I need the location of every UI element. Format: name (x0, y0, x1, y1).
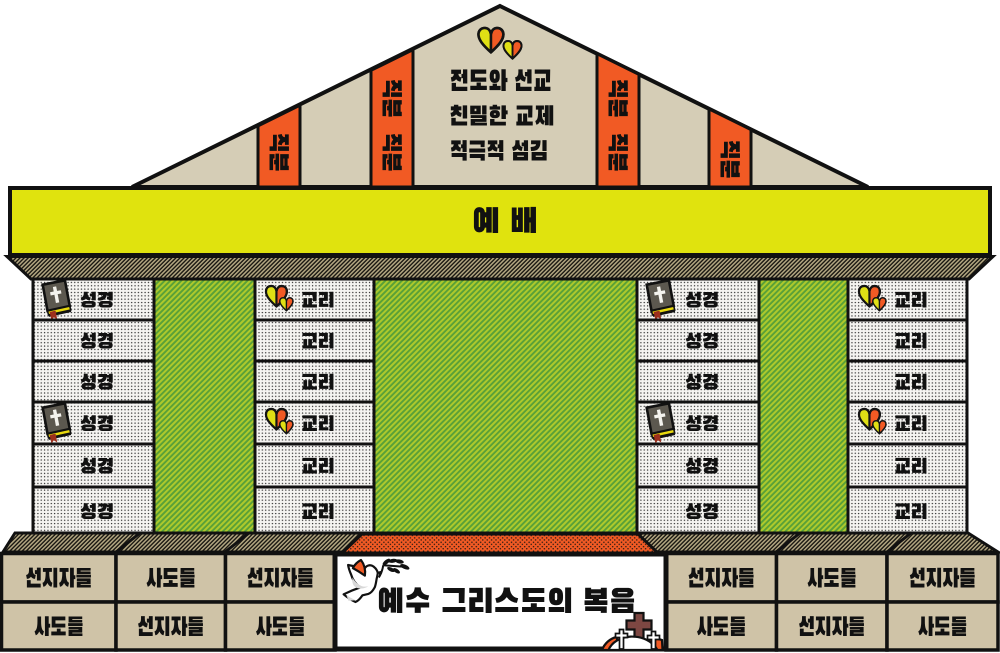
svg-text:선지자들: 선지자들 (909, 568, 976, 594)
svg-text:선지자들: 선지자들 (798, 616, 865, 642)
svg-text:성경: 성경 (685, 290, 719, 312)
svg-text:교리: 교리 (301, 503, 335, 524)
svg-text:성경: 성경 (685, 502, 719, 524)
svg-text:교리: 교리 (894, 291, 928, 312)
svg-text:성경: 성경 (685, 456, 719, 478)
svg-text:예수 그리스도의 복음: 예수 그리스도의 복음 (377, 587, 636, 621)
svg-text:교리: 교리 (894, 415, 928, 436)
svg-text:직분: 직분 (602, 79, 628, 118)
svg-text:선지자들: 선지자들 (688, 568, 755, 594)
svg-text:성경: 성경 (685, 372, 719, 394)
svg-text:교리: 교리 (301, 373, 335, 394)
svg-text:선지자들: 선지자들 (137, 616, 204, 642)
svg-text:직분: 직분 (602, 133, 628, 172)
svg-text:사도들: 사도들 (146, 568, 196, 594)
svg-text:직분: 직분 (376, 133, 402, 172)
svg-text:성경: 성경 (80, 372, 114, 394)
svg-text:성경: 성경 (80, 456, 114, 478)
svg-text:교리: 교리 (894, 373, 928, 394)
svg-text:교리: 교리 (301, 291, 335, 312)
svg-text:직분: 직분 (263, 133, 289, 172)
svg-text:사도들: 사도들 (255, 616, 305, 642)
svg-text:직분: 직분 (714, 140, 740, 179)
svg-text:교리: 교리 (894, 457, 928, 478)
svg-text:교리: 교리 (894, 503, 928, 524)
svg-text:교리: 교리 (301, 457, 335, 478)
svg-text:사도들: 사도들 (34, 616, 84, 642)
svg-text:성경: 성경 (80, 414, 114, 436)
svg-text:성경: 성경 (80, 502, 114, 524)
svg-text:선지자들: 선지자들 (247, 568, 314, 594)
svg-text:예 배: 예 배 (472, 206, 538, 241)
svg-text:전도와 선교: 전도와 선교 (450, 69, 552, 98)
svg-text:선지자들: 선지자들 (25, 568, 92, 594)
svg-text:사도들: 사도들 (918, 616, 968, 642)
svg-text:성경: 성경 (80, 331, 114, 353)
svg-text:성경: 성경 (685, 414, 719, 436)
svg-text:직분: 직분 (376, 79, 402, 118)
svg-text:성경: 성경 (80, 290, 114, 312)
svg-text:교리: 교리 (301, 415, 335, 436)
svg-text:사도들: 사도들 (696, 616, 746, 642)
svg-text:교리: 교리 (301, 332, 335, 353)
svg-text:적극적 섬김: 적극적 섬김 (450, 139, 548, 166)
svg-text:친밀한 교제: 친밀한 교제 (450, 105, 555, 132)
svg-text:교리: 교리 (894, 332, 928, 353)
svg-text:사도들: 사도들 (807, 568, 857, 594)
svg-text:성경: 성경 (685, 331, 719, 353)
